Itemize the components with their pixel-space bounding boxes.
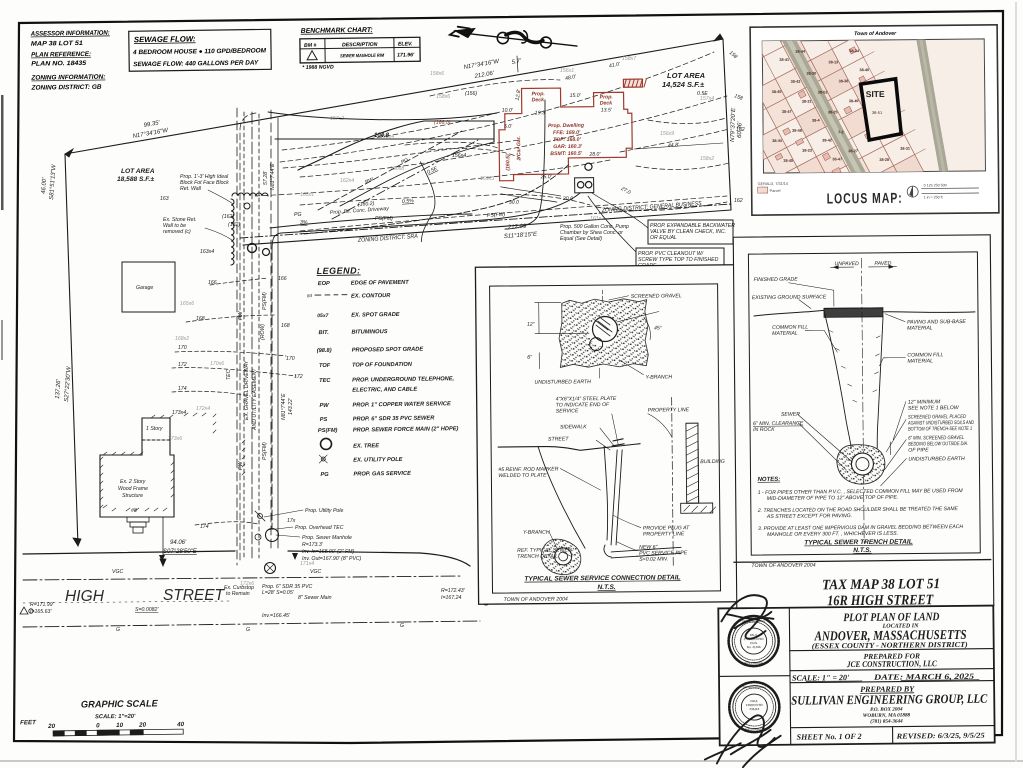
svg-text:(ROW): (ROW): [260, 324, 266, 340]
svg-text:157x4: 157x4: [700, 96, 714, 102]
svg-text:BIT.: BIT.: [318, 330, 329, 336]
svg-text:Prop. Dwelling: Prop. Dwelling: [548, 123, 585, 129]
svg-text:38-23: 38-23: [802, 149, 812, 153]
svg-text:38-27: 38-27: [848, 149, 858, 153]
svg-text:44.8': 44.8': [668, 142, 680, 149]
svg-text:TOF: TOF: [319, 363, 331, 369]
svg-text:38-31: 38-31: [900, 147, 910, 151]
svg-text:20.0: 20.0: [562, 196, 573, 202]
svg-text:38-48: 38-48: [792, 129, 802, 133]
svg-text:AND UTILITY EASEMENT: AND UTILITY EASEMENT: [252, 368, 258, 431]
svg-text:38-13: 38-13: [828, 60, 838, 64]
svg-text:168: 168: [281, 323, 290, 329]
svg-text:ELEV.: ELEV.: [398, 41, 413, 47]
svg-text:18,588 S.F.±: 18,588 S.F.±: [117, 176, 154, 183]
svg-text:38-40: 38-40: [860, 68, 870, 72]
svg-text:14,524 S.F.±: 14,524 S.F.±: [662, 80, 705, 89]
svg-text:38-42: 38-42: [822, 138, 832, 142]
svg-text:38-47: 38-47: [782, 110, 792, 114]
svg-text:ASSESSOR INFORMATION:: ASSESSOR INFORMATION:: [30, 30, 110, 38]
svg-text:S=0.0082': S=0.0082': [135, 607, 159, 613]
svg-text:* 1988 NGVD: * 1988 NGVD: [302, 64, 334, 70]
svg-text:46.00': 46.00': [41, 177, 48, 194]
svg-text:GRAPHIC SCALE: GRAPHIC SCALE: [81, 698, 159, 710]
svg-text:EOP: EOP: [318, 281, 330, 287]
svg-text:17x: 17x: [287, 518, 296, 524]
svg-text:0.5%: 0.5%: [402, 198, 415, 205]
svg-text:170x6: 170x6: [210, 361, 224, 367]
svg-text:R=171.99': R=171.99': [30, 602, 55, 608]
svg-text:28.0': 28.0': [588, 152, 601, 158]
svg-text:LOT AREA: LOT AREA: [121, 168, 155, 175]
svg-text:DATE: MARCH 6, 2025: DATE: MARCH 6, 2025: [873, 672, 974, 682]
svg-text:OF PIPE: OF PIPE: [908, 447, 929, 453]
svg-text:REVISED: 6/3/25, 9/5/25: REVISED: 6/3/25, 9/5/25: [895, 731, 984, 741]
svg-text:38-25: 38-25: [828, 110, 838, 114]
svg-text:EX. UTILITY POLE: EX. UTILITY POLE: [353, 457, 402, 464]
svg-text:PG: PG: [320, 472, 329, 478]
svg-text:40: 40: [176, 721, 185, 728]
svg-text:38-28: 38-28: [879, 158, 889, 162]
svg-text:to Remain: to Remain: [226, 591, 250, 597]
svg-text:38-52: 38-52: [818, 90, 828, 94]
svg-text:LEGEND:: LEGEND:: [317, 265, 361, 276]
svg-text:EDGE OF PAVEMENT: EDGE OF PAVEMENT: [351, 280, 410, 287]
svg-text:(781) 854-3644: (781) 854-3644: [870, 718, 903, 725]
svg-text:DESCRIPTION: DESCRIPTION: [342, 42, 378, 48]
svg-text:TRENCH DETAIL: TRENCH DETAIL: [517, 553, 558, 559]
svg-text:12": 12": [527, 322, 536, 328]
svg-text:161x2: 161x2: [590, 216, 604, 222]
svg-text:TOP OF FOUNDATION: TOP OF FOUNDATION: [352, 362, 413, 369]
svg-text:PROFESSIONAL: PROFESSIONAL: [744, 661, 765, 665]
svg-text:94.06': 94.06': [170, 540, 187, 546]
svg-text:ZONING INFORMATION:: ZONING INFORMATION:: [30, 74, 105, 82]
svg-text:FINISHED GRADE: FINISHED GRADE: [754, 277, 799, 283]
svg-text:LOT AREA: LOT AREA: [667, 71, 705, 80]
svg-text:STREET: STREET: [163, 587, 226, 604]
svg-text:20: 20: [47, 723, 56, 730]
svg-text:38-24: 38-24: [849, 49, 860, 53]
svg-text:EX. SPOT GRADE: EX. SPOT GRADE: [351, 312, 400, 319]
svg-text:Structure: Structure: [122, 493, 143, 499]
svg-text:PS(FM): PS(FM): [318, 428, 338, 434]
svg-text:Prop. Sewer Manhole: Prop. Sewer Manhole: [302, 535, 352, 541]
svg-text:1 in = 250 ft: 1 in = 250 ft: [924, 195, 943, 199]
svg-text:38-38: 38-38: [839, 79, 849, 83]
svg-text:L=28' S=0.05': L=28' S=0.05': [262, 590, 295, 596]
svg-text:Wood Frame: Wood Frame: [118, 486, 148, 492]
svg-text:162: 162: [736, 127, 745, 133]
svg-text:R=173.3': R=173.3': [302, 542, 324, 548]
svg-text:EXISTING GROUND SURFACE: EXISTING GROUND SURFACE: [752, 294, 827, 301]
svg-text:(166.0): (166.0): [434, 120, 451, 126]
svg-text:SEWER MANHOLE RIM: SEWER MANHOLE RIM: [340, 53, 384, 59]
svg-text:STREET: STREET: [548, 436, 569, 442]
svg-text:Parcel: Parcel: [770, 189, 781, 193]
svg-text:174: 174: [178, 386, 187, 392]
svg-text:VGC: VGC: [310, 569, 321, 575]
svg-text:BSMT: 160.5': BSMT: 160.5': [550, 151, 583, 157]
svg-text:SHEET No. 1 OF 2: SHEET No. 1 OF 2: [797, 732, 862, 742]
svg-text:(160.2): (160.2): [358, 201, 375, 208]
svg-text:163: 163: [160, 196, 169, 202]
svg-text:163x1: 163x1: [300, 192, 314, 198]
svg-text:PROPERTY LINE: PROPERTY LINE: [643, 531, 685, 537]
svg-text:168: 168: [196, 316, 205, 322]
svg-text:165x6: 165x6: [180, 301, 194, 307]
svg-text:GERALD, 7/31/14: GERALD, 7/31/14: [758, 182, 788, 186]
svg-text:PW: PW: [319, 403, 329, 409]
svg-text:N81°7'44"E: N81°7'44"E: [270, 163, 276, 190]
svg-text:Prop. Utility Pole: Prop. Utility Pole: [305, 508, 343, 514]
svg-text:MANHOLE OR EVERY 300 FT. , WHI: MANHOLE OR EVERY 300 FT. , WHICHEVER IS …: [767, 531, 898, 538]
svg-text:JCE CONSTRUCTION, LLC: JCE CONSTRUCTION, LLC: [846, 658, 937, 669]
svg-text:Town of Andover: Town of Andover: [854, 31, 897, 37]
svg-text:UNDISTURBED EARTH: UNDISTURBED EARTH: [908, 456, 965, 463]
svg-text:84: 84: [307, 293, 313, 298]
svg-text:SEWER: SEWER: [781, 412, 800, 418]
svg-text:38-45: 38-45: [783, 159, 793, 163]
svg-text:3%: 3%: [300, 220, 308, 226]
svg-text:171.96': 171.96': [397, 52, 415, 58]
svg-text:166: 166: [208, 280, 217, 286]
svg-text:PS: PS: [320, 417, 328, 423]
svg-text:MATERIAL: MATERIAL: [907, 325, 933, 331]
svg-text:TAX MAP 38 LOT 51: TAX MAP 38 LOT 51: [822, 576, 940, 593]
svg-text:172: 172: [178, 362, 187, 368]
svg-text:143.22': 143.22': [288, 397, 294, 415]
svg-text:PLAN NO. 18435: PLAN NO. 18435: [31, 60, 87, 68]
svg-text:166: 166: [278, 276, 287, 282]
svg-text:PW: PW: [238, 461, 244, 470]
svg-text:162: 162: [734, 198, 743, 204]
svg-text:ELECTRIC, AND CABLE: ELECTRIC, AND CABLE: [352, 387, 417, 394]
svg-text:10: 10: [116, 722, 124, 729]
svg-text:TEC: TEC: [319, 378, 331, 384]
svg-text:Inv. In=168.00' (2" FM): Inv. In=168.00' (2" FM): [302, 549, 354, 555]
svg-text:(160.5): (160.5): [505, 154, 511, 171]
svg-text:LOCUS MAP:: LOCUS MAP:: [827, 191, 903, 208]
svg-text:Y-BRANCH: Y-BRANCH: [523, 530, 550, 536]
svg-text:N81°7'44"E: N81°7'44"E: [281, 393, 287, 420]
svg-text:PROPERTY LINE: PROPERTY LINE: [648, 407, 690, 413]
svg-text:158x6: 158x6: [436, 94, 450, 100]
svg-text:38-43: 38-43: [791, 80, 801, 84]
svg-text:20: 20: [138, 722, 147, 729]
svg-text:S07°28'50"E: S07°28'50"E: [163, 549, 198, 555]
svg-text:8" Sewer Main: 8" Sewer Main: [298, 595, 332, 601]
svg-text:156x9: 156x9: [660, 131, 674, 137]
svg-text:OR EQUAL: OR EQUAL: [650, 235, 677, 241]
svg-text:5.0': 5.0': [504, 124, 513, 130]
svg-text:168x2: 168x2: [175, 336, 189, 342]
svg-text:COMMONWEALTH: COMMONWEALTH: [743, 685, 766, 689]
svg-text:Equal (See Detail): Equal (See Detail): [560, 236, 602, 242]
svg-text:BM #: BM #: [304, 43, 317, 49]
svg-text:N.T.S.: N.T.S.: [597, 584, 615, 591]
svg-text:S=0.02 MIN.: S=0.02 MIN.: [639, 556, 668, 562]
svg-text:TOF: 168.0': TOF: 168.0': [553, 137, 581, 143]
svg-text:SEE NOTE 1 BELOW: SEE NOTE 1 BELOW: [908, 405, 960, 411]
svg-text:BENCHMARK CHART:: BENCHMARK CHART:: [301, 27, 373, 35]
svg-text:172: 172: [294, 374, 303, 380]
svg-text:No. 41496: No. 41496: [747, 645, 761, 649]
svg-text:SERVICE: SERVICE: [556, 408, 579, 414]
svg-text:57.28': 57.28': [263, 170, 269, 185]
svg-text:Inv.=166.45': Inv.=166.45': [262, 613, 291, 619]
svg-text:PG: PG: [294, 212, 302, 218]
svg-text:172x4: 172x4: [196, 406, 210, 412]
svg-text:G: G: [246, 627, 250, 633]
svg-text:SCALE: 1" = 20': SCALE: 1" = 20': [792, 673, 850, 683]
svg-text:15.0': 15.0': [570, 93, 582, 99]
svg-text:19.3': 19.3': [535, 110, 547, 116]
svg-text:(98.8): (98.8): [317, 348, 332, 354]
svg-text:FEET: FEET: [20, 719, 37, 726]
svg-text:162x4: 162x4: [340, 178, 354, 184]
svg-text:38-41: 38-41: [779, 58, 789, 62]
svg-text:EX. TREE: EX. TREE: [353, 443, 379, 449]
svg-text:EX. GRAVEL DRIVEWAY: EX. GRAVEL DRIVEWAY: [244, 360, 250, 420]
svg-text:R=172.43': R=172.43': [441, 588, 466, 594]
svg-text:#8: #8: [131, 508, 137, 514]
svg-text:BITUMINOUS: BITUMINOUS: [351, 329, 387, 336]
svg-text:MATERIAL: MATERIAL: [772, 331, 798, 337]
svg-text:SCREENED GRAVEL: SCREENED GRAVEL: [631, 293, 682, 299]
svg-text:WELDED TO PLATE: WELDED TO PLATE: [498, 473, 547, 479]
svg-text:Garage: Garage: [136, 285, 153, 291]
svg-text:Deck: Deck: [600, 100, 614, 106]
svg-text:PROP. GAS SERVICE: PROP. GAS SERVICE: [353, 471, 411, 478]
svg-text:PS(FM): PS(FM): [375, 216, 393, 222]
svg-text:GAR: 160.3': GAR: 160.3': [553, 144, 583, 150]
svg-text:ZONING DISTRICT: GB: ZONING DISTRICT: GB: [30, 84, 101, 92]
svg-text:38-4: 38-4: [812, 119, 821, 123]
svg-text:I=167.24: I=167.24: [441, 595, 461, 601]
svg-text:removed (c): removed (c): [163, 229, 191, 235]
svg-text:(162): (162): [222, 214, 234, 220]
svg-text:VGC: VGC: [112, 569, 123, 575]
svg-text:38-51: 38-51: [872, 110, 883, 115]
svg-text:NOTES:: NOTES:: [758, 477, 781, 483]
svg-text:163x4: 163x4: [200, 249, 214, 255]
svg-text:PLAN REFERENCE:: PLAN REFERENCE:: [31, 51, 91, 59]
svg-text:(156): (156): [465, 91, 477, 97]
svg-text:#36116: #36116: [749, 707, 759, 711]
svg-text:UNDISTURBED EARTH: UNDISTURBED EARTH: [534, 379, 591, 386]
svg-text:38-30: 38-30: [807, 72, 817, 76]
svg-text:TYPICAL SEWER SERVICE CONNECTI: TYPICAL SEWER SERVICE CONNECTION DETAIL: [524, 574, 680, 582]
svg-text:170: 170: [178, 345, 187, 351]
svg-text:38-44: 38-44: [772, 139, 783, 143]
svg-text:(ESSEX COUNTY - NORTHERN DISTR: (ESSEX COUNTY - NORTHERN DISTRICT): [812, 640, 969, 651]
svg-text:PW: PW: [238, 311, 244, 320]
svg-text:G: G: [400, 623, 404, 629]
svg-text:38-47: 38-47: [832, 157, 842, 161]
svg-text:MAP 38 LOT 51: MAP 38 LOT 51: [31, 40, 84, 48]
svg-text:PS(FM): PS(FM): [262, 442, 268, 460]
svg-text:158x2: 158x2: [700, 156, 714, 162]
svg-text:38-44: 38-44: [795, 50, 806, 54]
svg-text:45°: 45°: [654, 325, 662, 331]
svg-text:N.T.S.: N.T.S.: [853, 547, 871, 554]
svg-text:38-21: 38-21: [802, 100, 812, 104]
svg-text:BUILDING: BUILDING: [700, 459, 725, 465]
svg-text:2 Car Gar.: 2 Car Gar.: [516, 136, 522, 162]
svg-text:174: 174: [200, 524, 209, 530]
svg-text:7-2: 7-2: [838, 130, 844, 134]
svg-text:PLOT PLAN OF LAND: PLOT PLAN OF LAND: [843, 611, 940, 624]
svg-text:156x1: 156x1: [560, 68, 574, 74]
svg-text:Prop. Overhead TEC: Prop. Overhead TEC: [295, 525, 344, 531]
svg-text:Inv. Out=167.90' (8" PVC): Inv. Out=167.90' (8" PVC): [302, 556, 362, 562]
svg-text:TEC: TEC: [226, 369, 232, 380]
svg-text:05x7: 05x7: [317, 313, 328, 319]
svg-text:158x7: 158x7: [622, 56, 637, 62]
svg-text:SULLIVAN ENGINEERING GROUP, LL: SULLIVAN ENGINEERING GROUP, LLC: [791, 692, 988, 708]
svg-text:Ex. 2 Story: Ex. 2 Story: [120, 479, 146, 485]
svg-text:TOWN OF ANDOVER 2004: TOWN OF ANDOVER 2004: [751, 562, 815, 569]
svg-text:MID-DIAMETER OF PIPE TO 12" AB: MID-DIAMETER OF PIPE TO 12" ABOVE TOP OF…: [767, 495, 899, 502]
svg-text:IN ROCK: IN ROCK: [753, 427, 775, 433]
svg-text:159x3: 159x3: [480, 176, 494, 182]
svg-text:SITE: SITE: [866, 89, 885, 99]
svg-text:13.5': 13.5': [601, 107, 613, 113]
svg-text:170: 170: [286, 356, 295, 362]
svg-text:38-45: 38-45: [772, 90, 782, 94]
svg-text:FFE: 169.0': FFE: 169.0': [553, 130, 581, 136]
svg-text:EX. CONTOUR: EX. CONTOUR: [351, 293, 391, 300]
svg-text:SCALE: 1"=20': SCALE: 1"=20': [95, 714, 136, 721]
svg-text:Ret. Wall: Ret. Wall: [180, 186, 202, 192]
svg-text:173x4: 173x4: [172, 410, 186, 416]
svg-text:TYPICAL SEWER TRENCH DETAIL: TYPICAL SEWER TRENCH DETAIL: [804, 539, 913, 547]
svg-text:PROP. 6" SDR 35 PVC SEWER: PROP. 6" SDR 35 PVC SEWER: [353, 415, 436, 422]
svg-text:Deck: Deck: [532, 97, 546, 103]
svg-text:TOWN OF ANDOVER 2004: TOWN OF ANDOVER 2004: [504, 596, 568, 603]
svg-text:SEWAGE FLOW:: SEWAGE FLOW:: [134, 34, 196, 44]
svg-text:PROPOSED SPOT GRADE: PROPOSED SPOT GRADE: [352, 347, 424, 354]
svg-text:G: G: [116, 627, 120, 633]
svg-text:38-49: 38-49: [849, 99, 859, 103]
svg-text:Y-BRANCH: Y-BRANCH: [645, 374, 672, 380]
svg-text:(182): (182): [228, 222, 240, 228]
svg-text:10.0': 10.0': [502, 108, 514, 114]
svg-text:1 Story: 1 Story: [146, 426, 163, 432]
svg-text:SIDEWALK: SIDEWALK: [560, 424, 587, 430]
svg-text:0 125 250 500: 0 125 250 500: [924, 183, 947, 187]
svg-text:MATERIAL: MATERIAL: [907, 358, 933, 364]
svg-text:BOTTOM OF TRENCH-SEE NOTE 1: BOTTOM OF TRENCH-SEE NOTE 1: [908, 426, 972, 433]
svg-text:AS STREET EXCEPT FOR PAVING.: AS STREET EXCEPT FOR PAVING.: [766, 513, 852, 520]
svg-text:158x6: 158x6: [430, 71, 444, 77]
svg-text:PS(FM): PS(FM): [262, 292, 268, 310]
